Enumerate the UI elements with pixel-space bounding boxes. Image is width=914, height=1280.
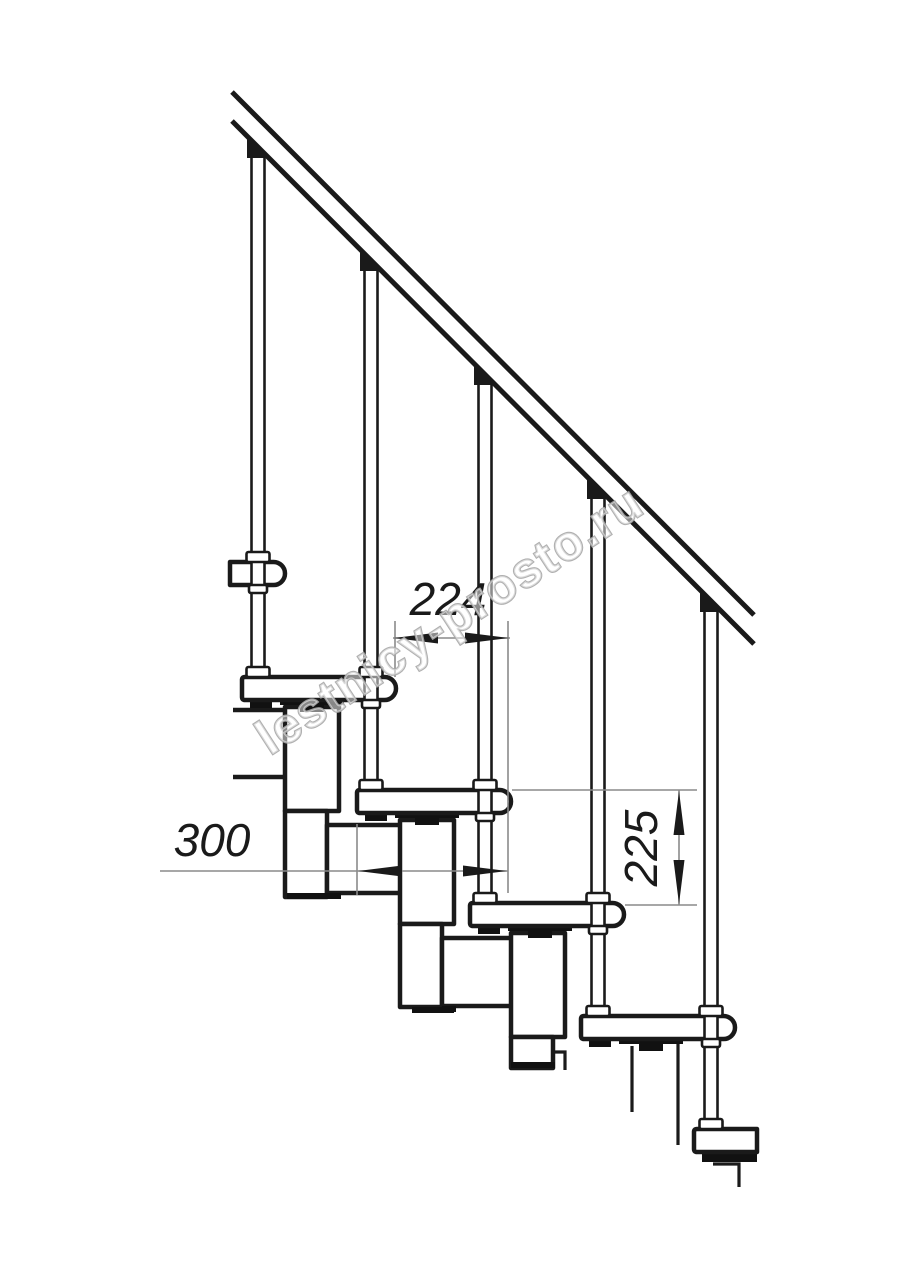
cutoff-bottom-step [713,1164,739,1187]
arrowhead-down [674,860,685,904]
collar-nub [702,1039,720,1047]
collar [474,780,497,790]
baluster-5-body [705,612,718,1129]
module-a4 [511,933,565,1037]
collar-nub [249,585,267,593]
tread4-clamp2 [528,931,552,938]
tread3-clamp2 [415,818,439,825]
collar [587,1006,610,1016]
tread5-clamp2 [639,1044,663,1051]
collar [700,1006,723,1016]
module-b2 [285,811,327,897]
module-b3 [400,924,442,1007]
collar-nub [589,926,607,934]
module-foot-1 [287,893,341,899]
staircase-section-drawing: 224 300 225 lestnicy-prosto.ru [0,0,914,1280]
collar [360,780,383,790]
module-a3 [400,820,454,924]
collar [247,667,270,677]
baluster-5-rail-wedge [700,590,722,612]
collar [247,552,270,562]
collar-nub [476,813,494,821]
module-foot-4 [511,1062,555,1068]
baluster-2-body [365,271,378,790]
baluster-1 [247,136,269,677]
collar [700,1119,723,1129]
collar [474,893,497,903]
handrail-top-line [232,92,754,615]
collar [587,893,610,903]
technical-drawing-page: 224 300 225 lestnicy-prosto.ru [0,0,914,1280]
dimension-300-value: 300 [174,814,251,866]
tread-6 [694,1129,757,1152]
baluster-3-body [479,385,492,903]
baluster-4-body [592,499,605,1016]
arrowhead-up [674,791,685,835]
module-square-3 [327,825,402,893]
dimension-225-value: 225 [615,809,667,887]
module-square-4 [442,938,517,1006]
baluster-1-body [252,158,265,677]
baluster-2-rail-wedge [360,249,382,271]
baluster-3-rail-wedge [474,363,496,385]
module-foot-3 [442,1006,456,1012]
